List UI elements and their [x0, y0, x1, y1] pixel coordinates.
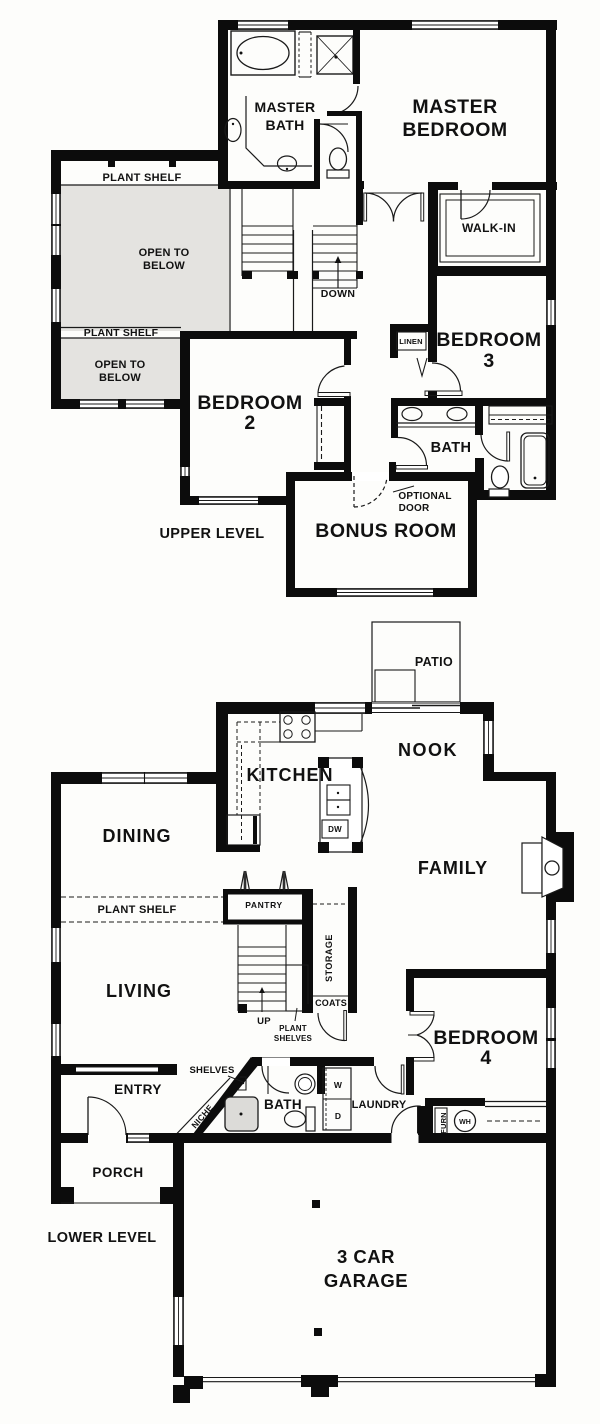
svg-text:PANTRY: PANTRY — [245, 900, 283, 910]
svg-text:NOOK: NOOK — [398, 740, 458, 760]
svg-text:LIVING: LIVING — [106, 981, 172, 1001]
svg-text:LOWER LEVEL: LOWER LEVEL — [47, 1230, 156, 1246]
svg-text:LAUNDRY: LAUNDRY — [352, 1099, 407, 1111]
svg-text:FAMILY: FAMILY — [418, 858, 488, 878]
svg-text:DW: DW — [328, 825, 342, 834]
svg-text:PLANT: PLANT — [279, 1024, 307, 1033]
svg-text:W: W — [334, 1080, 343, 1090]
svg-text:OPEN TO: OPEN TO — [139, 247, 190, 259]
svg-text:DOOR: DOOR — [399, 503, 430, 514]
svg-text:OPTIONAL: OPTIONAL — [398, 491, 451, 502]
svg-text:BEDROOM: BEDROOM — [402, 119, 507, 141]
svg-text:WALK-IN: WALK-IN — [462, 221, 516, 235]
svg-text:3: 3 — [483, 350, 494, 372]
svg-text:DOWN: DOWN — [321, 288, 355, 300]
svg-text:BEDROOM: BEDROOM — [436, 329, 541, 351]
svg-text:MASTER: MASTER — [255, 99, 316, 115]
svg-text:BELOW: BELOW — [143, 260, 185, 272]
svg-text:WH: WH — [459, 1119, 471, 1126]
svg-text:D: D — [335, 1111, 341, 1121]
svg-text:PATIO: PATIO — [415, 655, 453, 669]
svg-text:MASTER: MASTER — [412, 96, 497, 118]
svg-text:BATH: BATH — [264, 1097, 302, 1112]
svg-text:3 CAR: 3 CAR — [337, 1246, 395, 1267]
svg-text:BELOW: BELOW — [99, 372, 141, 384]
svg-text:PORCH: PORCH — [92, 1165, 143, 1180]
svg-text:UPPER LEVEL: UPPER LEVEL — [159, 526, 264, 542]
svg-text:FURN: FURN — [439, 1112, 448, 1134]
svg-text:BATH: BATH — [431, 440, 472, 456]
svg-text:KITCHEN: KITCHEN — [247, 765, 334, 785]
svg-text:UP: UP — [257, 1016, 271, 1027]
svg-text:BONUS ROOM: BONUS ROOM — [315, 520, 457, 542]
svg-text:BEDROOM: BEDROOM — [197, 392, 302, 414]
svg-text:LINEN: LINEN — [399, 337, 423, 346]
svg-text:GARAGE: GARAGE — [324, 1270, 408, 1291]
svg-text:OPEN TO: OPEN TO — [95, 359, 146, 371]
svg-text:STORAGE: STORAGE — [324, 934, 334, 982]
svg-text:4: 4 — [480, 1047, 491, 1069]
svg-text:PLANT SHELF: PLANT SHELF — [102, 172, 181, 184]
svg-text:PLANT SHELF: PLANT SHELF — [97, 904, 176, 916]
svg-text:SHELVES: SHELVES — [274, 1034, 313, 1043]
svg-text:ENTRY: ENTRY — [114, 1082, 162, 1097]
svg-text:2: 2 — [244, 412, 255, 434]
svg-text:COATS: COATS — [315, 998, 347, 1008]
svg-text:PLANT SHELF: PLANT SHELF — [84, 327, 159, 339]
svg-text:SHELVES: SHELVES — [189, 1065, 234, 1076]
svg-text:DINING: DINING — [103, 826, 172, 846]
svg-text:BEDROOM: BEDROOM — [433, 1027, 538, 1049]
svg-text:BATH: BATH — [265, 117, 304, 133]
